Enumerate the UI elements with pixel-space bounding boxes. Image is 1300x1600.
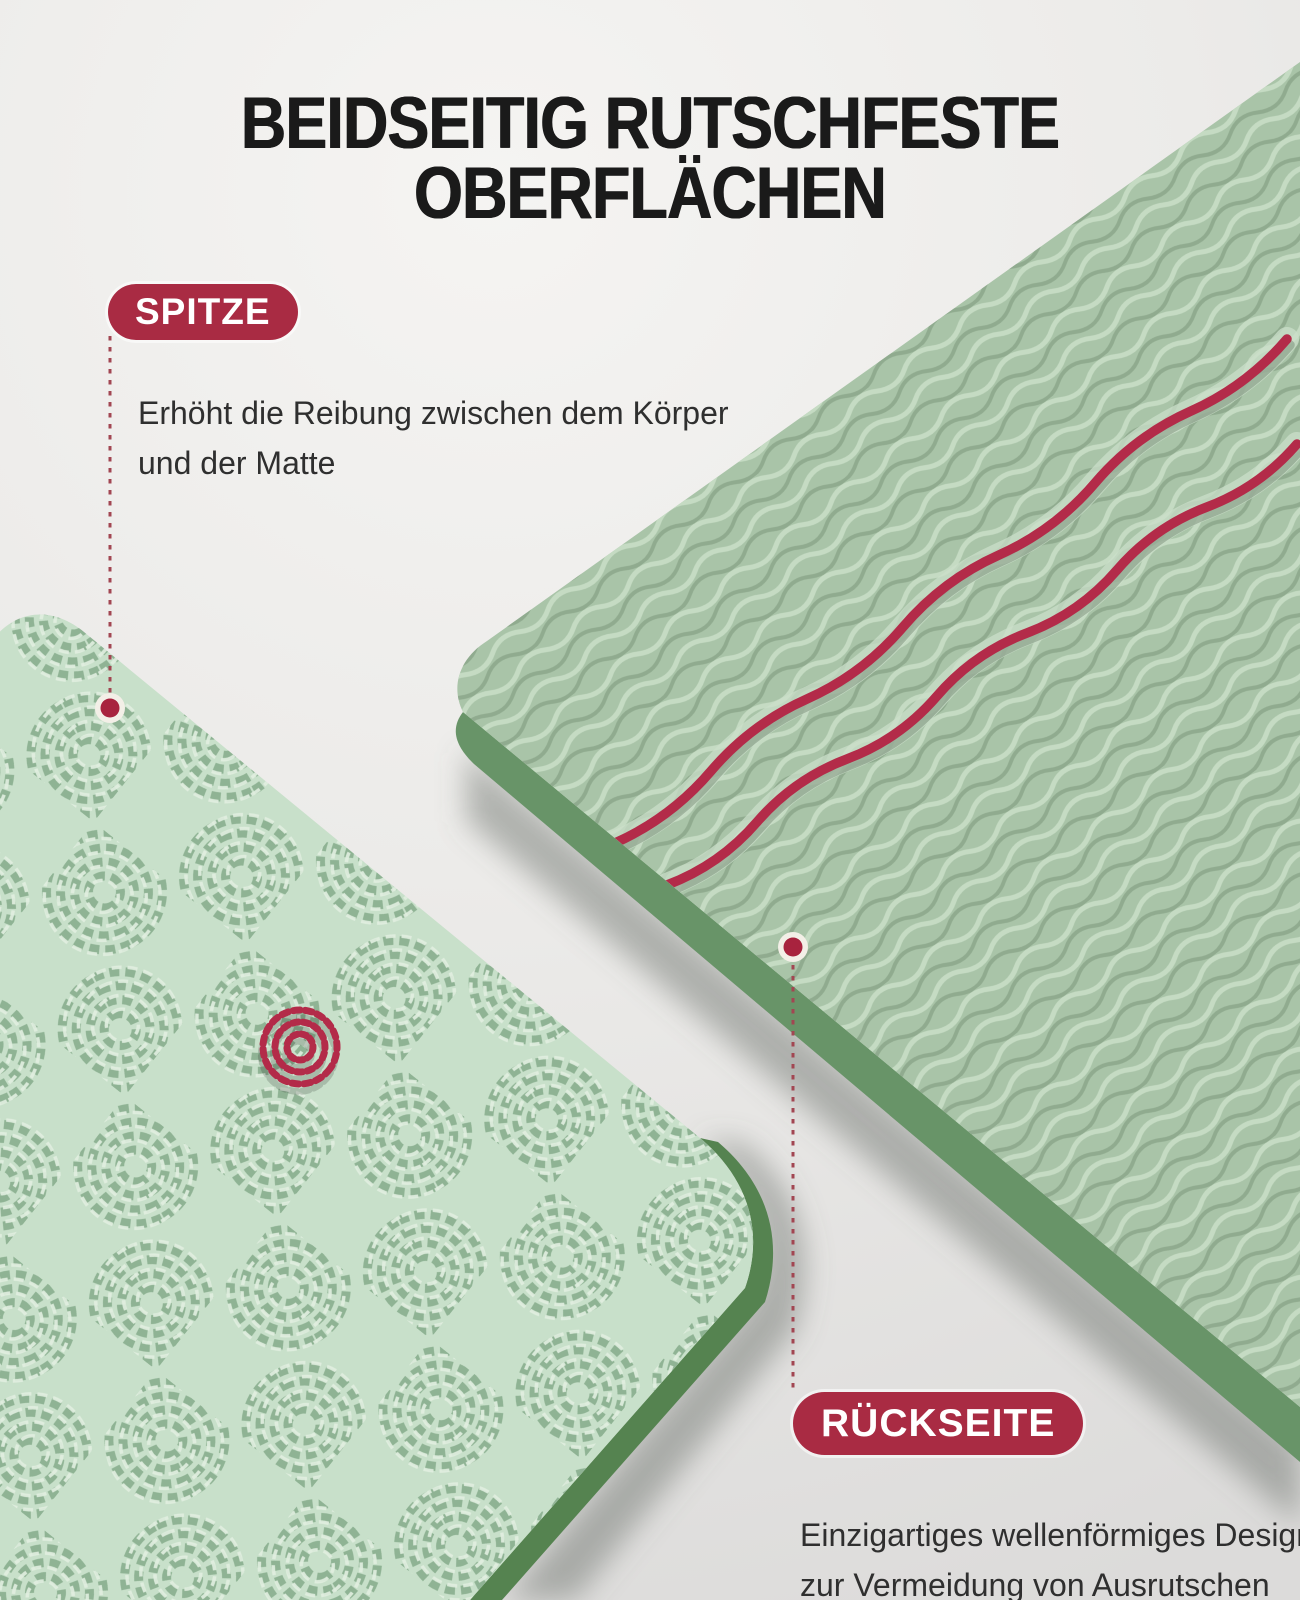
- page-title: BEIDSEITIG RUTSCHFESTE OBERFLÄCHEN: [0, 89, 1300, 229]
- rueckseite-marker-icon: [784, 938, 803, 957]
- rueckseite-badge-label: RÜCKSEITE: [821, 1402, 1055, 1446]
- page-title-line1: BEIDSEITIG RUTSCHFESTE: [91, 89, 1209, 159]
- product-infographic: BEIDSEITIG RUTSCHFESTE OBERFLÄCHEN SPITZ…: [0, 0, 1300, 1600]
- spitze-badge: SPITZE: [108, 284, 298, 340]
- spitze-badge-label: SPITZE: [135, 291, 271, 333]
- rueckseite-badge: RÜCKSEITE: [793, 1392, 1083, 1455]
- spitze-description: Erhöht die Reibung zwischen dem Körper u…: [138, 388, 738, 488]
- spitze-marker-icon: [101, 699, 120, 718]
- page-title-line2: OBERFLÄCHEN: [91, 159, 1209, 229]
- mats-illustration: [0, 0, 1300, 1600]
- rueckseite-description: Einzigartiges wellenförmiges Design zur …: [800, 1510, 1300, 1600]
